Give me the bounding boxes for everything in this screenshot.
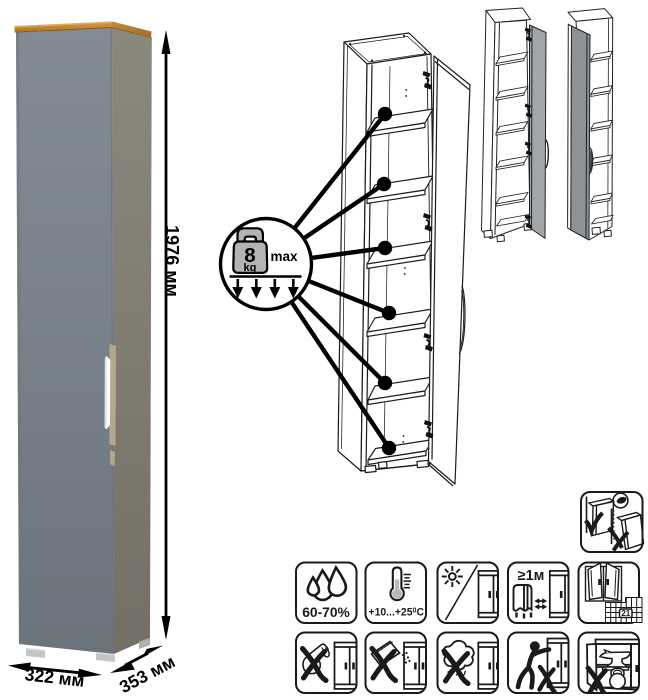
svg-text:322 мм: 322 мм: [24, 664, 86, 691]
svg-text:max: max: [270, 249, 298, 264]
svg-text:60-70%: 60-70%: [302, 605, 350, 620]
svg-text:+10...+250C: +10...+250C: [369, 605, 425, 618]
svg-text:≥1м: ≥1м: [518, 568, 545, 584]
svg-text:21: 21: [621, 609, 630, 618]
svg-text:kg: kg: [243, 262, 256, 274]
svg-text:353 мм: 353 мм: [116, 651, 178, 697]
svg-text:1976 мм: 1976 мм: [162, 225, 182, 297]
